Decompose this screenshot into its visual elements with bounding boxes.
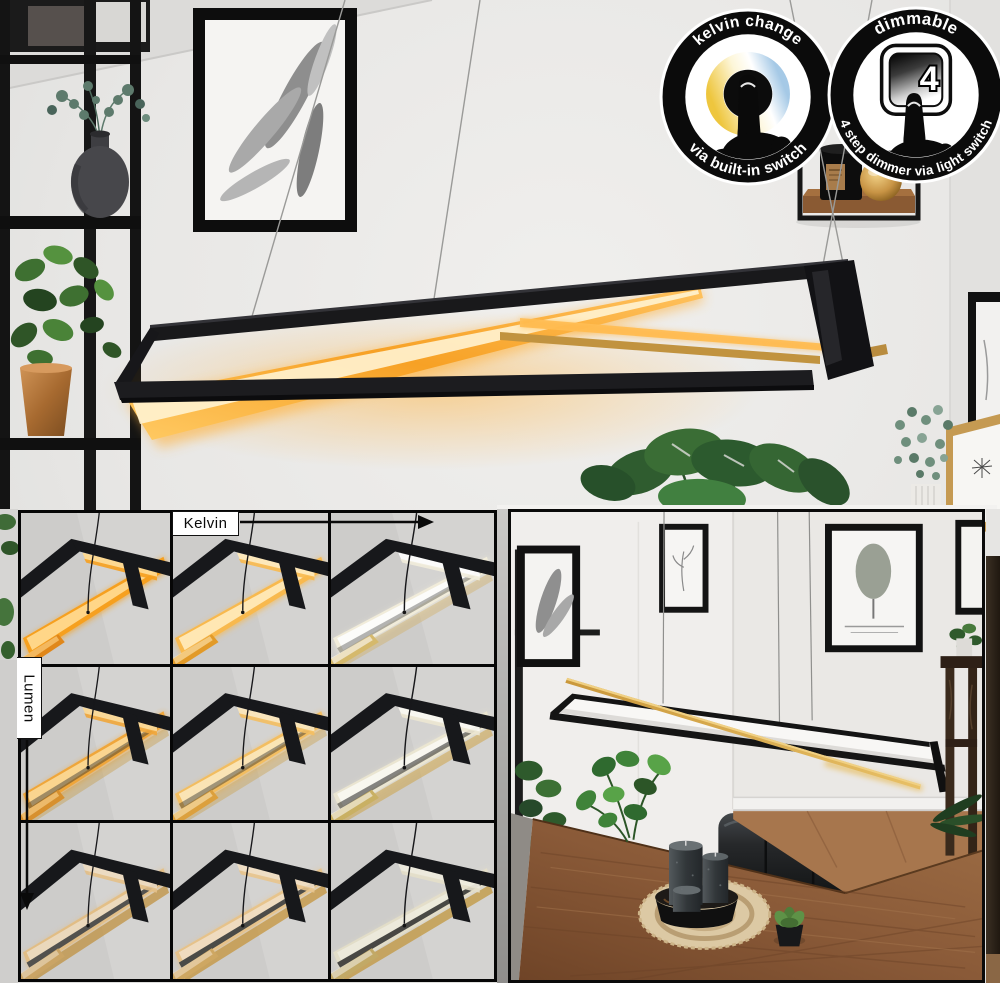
grid-cell-warm-bright — [21, 513, 170, 664]
grid-cell-warm-low — [21, 823, 170, 979]
kelvin-axis-label: Kelvin — [172, 511, 239, 536]
kelvin-lumen-grid: Kelvin Lumen — [18, 510, 497, 982]
grid-cell-cool-bright — [331, 513, 494, 664]
product-image: kelvin change via built-in switch — [0, 0, 1000, 1000]
kelvin-axis-label-text: Kelvin — [184, 515, 228, 532]
grid-cell-cool-low — [331, 823, 494, 979]
left-sliver — [0, 509, 19, 983]
dining-room-photo — [508, 509, 985, 983]
gap-strip — [497, 509, 508, 983]
badge-dimmable: 4 dimmable 4 step dimmer via light switc… — [826, 5, 1000, 185]
inset-wall-art-botanical — [825, 524, 923, 652]
dimmer-steps-number: 4 — [920, 60, 939, 98]
lumen-axis-arrow-icon — [18, 740, 36, 912]
grid-cell-neutral-mid — [173, 667, 328, 820]
lumen-axis-label: Lumen — [17, 657, 42, 739]
inset-wall-art-sketch — [659, 524, 708, 613]
grid-cell-warm-mid — [21, 667, 170, 820]
kelvin-axis-arrow-icon — [240, 514, 435, 530]
right-sliver — [986, 509, 1000, 983]
grid-cell-neutral-low — [173, 823, 328, 979]
lumen-axis-label-text: Lumen — [21, 674, 38, 722]
inset-wall-art-partial — [955, 520, 982, 615]
grid-cell-cool-mid — [331, 667, 494, 820]
badge-kelvin-change: kelvin change via built-in switch — [658, 7, 838, 187]
baseboard — [733, 797, 982, 811]
succulent-pot — [772, 907, 808, 946]
inset-wall-art-leaf — [517, 546, 580, 667]
